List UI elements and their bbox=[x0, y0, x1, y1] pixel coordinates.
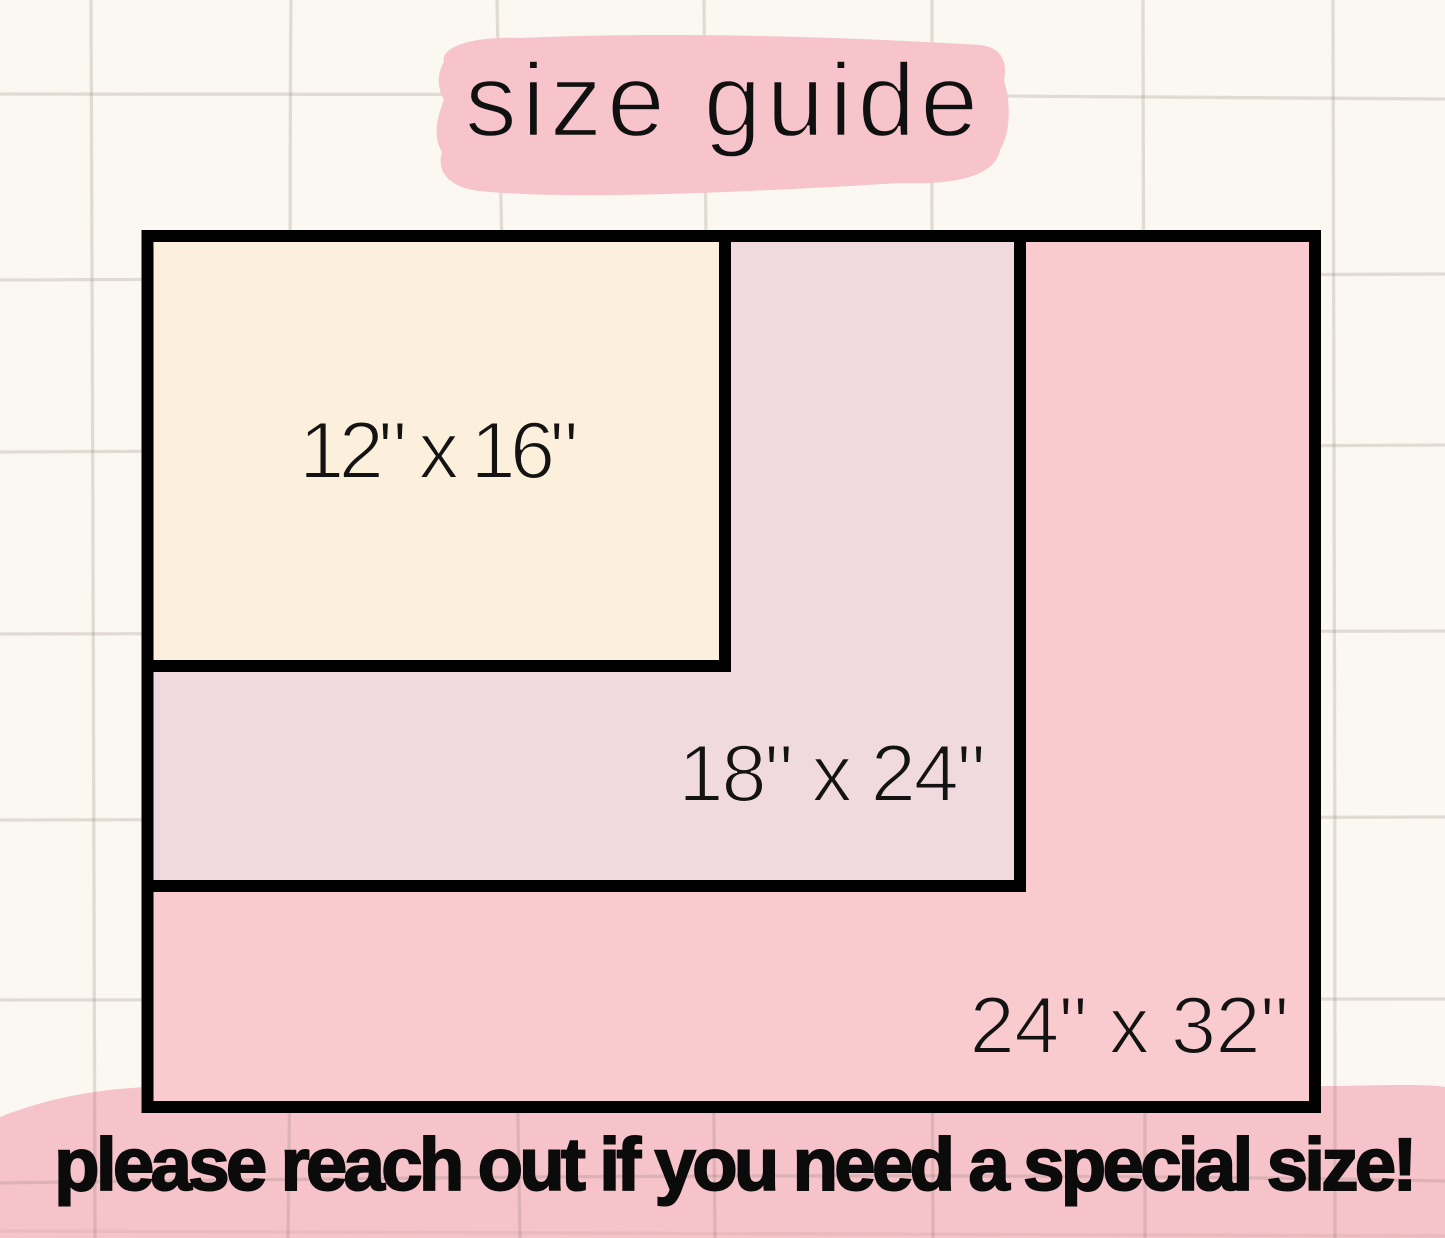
svg-text:24" x 32": 24" x 32" bbox=[970, 981, 1289, 1071]
svg-text:12" x 16": 12" x 16" bbox=[299, 406, 575, 496]
svg-text:size guide: size guide bbox=[465, 43, 983, 159]
svg-text:18" x 24": 18" x 24" bbox=[678, 729, 983, 819]
svg-text:please reach out if you need a: please reach out if you need a special s… bbox=[54, 1123, 1413, 1206]
